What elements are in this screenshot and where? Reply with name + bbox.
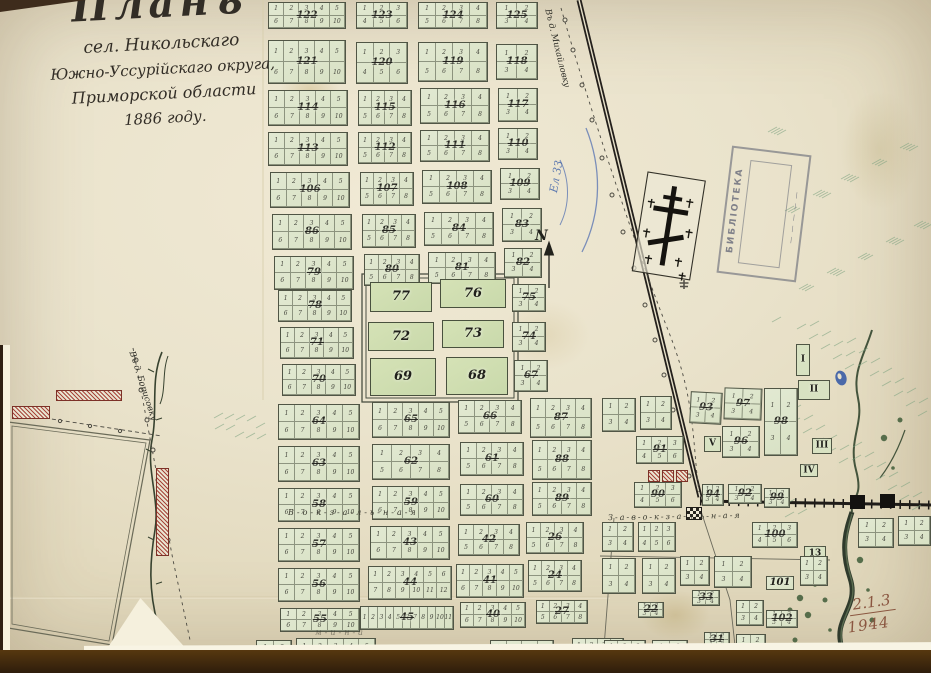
lot-number: 2 (289, 215, 305, 232)
lot-number: 6 (546, 418, 561, 437)
lot-number: 10 (330, 16, 345, 29)
lot-number: 3 (311, 489, 327, 505)
lot-number: 3 (403, 487, 418, 503)
lot-number: 3 (492, 485, 508, 500)
lot-number: 1 (725, 388, 744, 404)
lot-number: 2 (284, 3, 299, 16)
lot-number: 6 (461, 615, 474, 627)
city-block-98: 123498 (764, 388, 798, 456)
lot-number: 1 (531, 399, 546, 418)
lot-number: 1 (357, 43, 374, 63)
lot-number: 2 (438, 131, 455, 146)
lot-number: 1 (369, 567, 383, 583)
city-block-60: 1234567860 (460, 484, 524, 516)
lot-number: 3 (378, 607, 386, 629)
lot-number: 9 (316, 108, 332, 125)
lot-number: 1 (423, 171, 440, 187)
lot-number: 8 (310, 343, 324, 358)
lot-number: 9 (396, 583, 410, 599)
city-block-112: 12345678112 (358, 132, 412, 164)
lot-number: 6 (392, 462, 411, 479)
lot-number: 7 (459, 229, 476, 245)
city-block-91: 12345691 (636, 436, 684, 464)
lot-number: 7 (369, 583, 383, 599)
lot-number: 10 (337, 306, 351, 321)
lot-number: 1 (753, 523, 768, 535)
lot-number: 5 (459, 417, 475, 433)
lot-number: 2 (374, 43, 391, 63)
lot-number: 7 (555, 576, 568, 591)
lot-number: 6 (273, 232, 289, 249)
city-block-79: 1234567891079 (274, 256, 354, 290)
lot-number: 4 (517, 62, 537, 79)
lot-number: 6 (668, 450, 683, 463)
lot-number: 4 (315, 41, 330, 62)
lot-number: 7 (297, 380, 311, 395)
lot-number: 3 (403, 403, 418, 420)
lot-number: 4 (814, 571, 827, 585)
lot-number: 5 (424, 567, 438, 583)
lot-number: 4 (419, 403, 434, 420)
lot-number: 1 (529, 561, 542, 576)
lot-number: 5 (341, 365, 355, 380)
lot-number: 2 (522, 209, 541, 225)
lot-number: 2 (285, 91, 301, 108)
lot-number: 6 (663, 537, 675, 551)
lot-number: 8 (402, 231, 415, 247)
lot-number: 1 (461, 485, 477, 500)
archive-reference: 2.1.3 1944 (848, 591, 899, 636)
lot-number: 8 (575, 612, 588, 623)
lot-number: 4 (320, 215, 336, 232)
lot-number: 8 (398, 108, 411, 125)
lot-number: 2 (619, 559, 635, 576)
lot-number: 1 (527, 523, 541, 538)
lot-number: 3 (555, 561, 568, 576)
lot-number: 4 (327, 489, 343, 505)
lot-number: 1 (459, 401, 475, 417)
lot-number: 2 (695, 557, 709, 571)
blue-pencil-marks (560, 128, 598, 252)
city-block-43: 1234567891043 (370, 526, 450, 560)
lot-number: 2 (470, 565, 483, 581)
lot-number: 4 (327, 569, 343, 585)
lot-number: 4 (322, 291, 336, 306)
lot-number: 1 (723, 427, 741, 442)
lot-number: 4 (398, 91, 411, 108)
lot-number: 9 (320, 232, 336, 249)
lot-number: 3 (503, 225, 522, 241)
lot-number: 3 (561, 399, 576, 418)
lot-number: 2 (523, 249, 541, 263)
lot-number: 4 (400, 173, 413, 189)
city-block-119: 12345678119 (418, 42, 488, 82)
lot-number: 2 (477, 443, 493, 459)
lot-number: 3 (499, 105, 518, 121)
lot-number: 8 (476, 229, 493, 245)
lot-number: 3 (668, 437, 683, 450)
city-block-76: 76 (440, 279, 506, 308)
lot-number: 4 (316, 91, 332, 108)
lot-number: 7 (295, 422, 311, 439)
lot-number: 10 (331, 149, 347, 165)
lot-number: 3 (899, 531, 915, 545)
lot-number: 3 (311, 529, 327, 545)
lot-number: 8 (577, 499, 592, 515)
city-block-III: III (812, 438, 832, 454)
lot-number: 3 (737, 613, 750, 625)
city-block-61: 1234567861 (460, 442, 524, 476)
lot-number: 8 (312, 380, 326, 395)
lot-number: 8 (506, 417, 522, 433)
lot-number: 1 (643, 559, 659, 576)
lot-number: 1 (503, 209, 522, 225)
library-stamp: БИБЛІОТЕКА — — — — — (716, 146, 811, 283)
lot-number: 2 (387, 527, 403, 543)
lot-number: 6 (440, 187, 457, 203)
city-block-88: 1234567888 (532, 440, 592, 480)
lot-number: 3 (492, 443, 508, 459)
lot-number: 7 (455, 106, 472, 123)
lot-number: 2 (741, 427, 759, 442)
lot-number: 5 (339, 328, 353, 343)
lot-number: 4 (876, 533, 893, 547)
lot-number: 5 (337, 257, 353, 273)
lot-number: 7 (284, 16, 299, 29)
lot-number: 6 (281, 343, 295, 358)
lot-number: 7 (295, 545, 311, 561)
lot-number: 2 (287, 173, 303, 190)
lot-number: 3 (641, 413, 656, 429)
lot-number: 2 (745, 485, 761, 494)
lot-number: 5 (533, 460, 548, 479)
lot-number: 2 (520, 169, 539, 184)
city-block-72: 72 (368, 322, 434, 351)
city-block-109: 1234109 (500, 168, 540, 200)
lot-number: 1 (635, 483, 650, 495)
lot-number: 4 (318, 173, 334, 190)
lot-number: 1 (365, 255, 379, 270)
lot-number: 3 (555, 523, 569, 538)
lot-number: 4 (357, 63, 374, 83)
lot-number: 4 (419, 487, 434, 503)
lot-number: 5 (394, 607, 402, 629)
lot-number: 4 (576, 399, 591, 418)
lot-number: 8 (403, 420, 418, 437)
lot-number: 2 (548, 441, 563, 460)
map-title: Планъ сел. Никольскаго Южно-Уссурійскаго… (38, 0, 285, 133)
lot-number: 2 (291, 257, 307, 273)
lot-number: 7 (287, 190, 303, 207)
lot-number: 4 (753, 535, 768, 547)
lot-number: 2 (295, 529, 311, 545)
lot-number: 6 (281, 620, 297, 631)
city-block-97: 123497 (723, 387, 762, 420)
lot-number: 3 (723, 442, 741, 457)
lot-number: 4 (470, 3, 487, 16)
lot-number: 4 (499, 603, 512, 615)
city-block: 1234 (898, 516, 931, 546)
lot-number: 2 (383, 567, 397, 583)
lot-number: 3 (724, 403, 743, 419)
lot-number: 5 (537, 612, 550, 623)
lot-number: 1 (505, 249, 523, 263)
lot-number: 3 (513, 298, 529, 311)
lot-number: 4 (327, 529, 343, 545)
lot-number: 5 (533, 499, 548, 515)
lot-number: 7 (387, 543, 403, 559)
lot-number: 10 (343, 585, 359, 601)
lot-number: 8 (311, 585, 327, 601)
lot-number: 1 (765, 489, 777, 498)
lot-number: 1 (533, 483, 548, 499)
lot-number: 7 (562, 460, 577, 479)
lot-number: 6 (542, 576, 555, 591)
lot-number: 5 (343, 405, 359, 422)
lot-number: 1 (641, 397, 656, 413)
lot-number: 4 (322, 257, 338, 273)
bridge-abutment (880, 494, 895, 508)
city-block-77: 77 (370, 282, 432, 312)
city-block-33: 123433 (692, 590, 720, 606)
lot-number: 2 (475, 401, 491, 417)
lot-number: 1 (283, 365, 297, 380)
city-block-101: 101 (766, 576, 794, 590)
lot-number: 3 (715, 572, 733, 587)
city-block-102: 1234102 (766, 610, 798, 628)
lot-number: 5 (343, 569, 359, 585)
city-block-115: 12345678115 (358, 90, 412, 126)
city-block-68: 68 (446, 357, 508, 395)
lot-number: 4 (506, 401, 522, 417)
lot-number: 7 (492, 500, 508, 515)
north-arrow (545, 242, 554, 288)
lot-number: 5 (343, 529, 359, 545)
lot-number: 4 (575, 601, 588, 612)
city-block-74: 123474 (512, 322, 546, 352)
city-block-118: 1234118 (496, 44, 538, 80)
lot-number: 2 (517, 45, 537, 62)
city-block-45: 123456789101145 (360, 606, 454, 630)
lot-number: 2 (285, 133, 301, 149)
lot-number: 2 (782, 611, 797, 619)
lot-number: 7 (389, 231, 402, 247)
lot-number: 2 (650, 483, 665, 495)
lot-number: 6 (279, 464, 295, 481)
city-block-69: 69 (370, 358, 436, 396)
lot-number: 1 (715, 557, 733, 572)
city-block-84: 1234567884 (424, 212, 494, 246)
city-block-41: 1234567891041 (456, 564, 524, 598)
lot-number: 8 (299, 16, 314, 29)
lot-number: 8 (483, 581, 496, 597)
city-block: 1234 (714, 556, 752, 588)
lot-number: 2 (388, 403, 403, 420)
lot-number: 2 (652, 437, 667, 450)
lot-number: 6 (373, 420, 388, 437)
lot-number: 2 (436, 43, 453, 62)
lot-number: 4 (619, 576, 635, 593)
lot-number: 1 (639, 603, 651, 610)
lot-number: 10 (510, 581, 523, 597)
lot-number: 2 (529, 285, 545, 298)
lot-number: 3 (505, 263, 523, 277)
lot-number: 4 (531, 376, 547, 391)
lot-number: 7 (555, 538, 569, 553)
lot-number: 2 (529, 323, 545, 337)
lot-number: 3 (302, 173, 318, 190)
lot-number: 7 (455, 146, 472, 161)
lot-number: 5 (461, 500, 477, 515)
lot-number: 3 (308, 291, 322, 306)
lot-number: 1 (419, 43, 436, 62)
lot-number: 2 (546, 399, 561, 418)
city-block-71: 1234567891071 (280, 327, 354, 359)
lot-number: 3 (859, 533, 876, 547)
lot-number: 6 (372, 148, 385, 163)
lot-number: 1 (459, 525, 474, 540)
lot-number: 4 (386, 607, 394, 629)
lot-number: 5 (373, 462, 392, 479)
block-number: 77 (371, 289, 431, 304)
blue-ink-blob (834, 369, 849, 386)
lot-number: 9 (499, 615, 512, 627)
lot-number: 4 (326, 365, 340, 380)
lot-number: 7 (293, 306, 307, 321)
lot-number: 2 (781, 389, 797, 422)
lot-number: 5 (423, 187, 440, 203)
lot-number: 1 (279, 405, 295, 422)
lot-number: 8 (304, 232, 320, 249)
lot-number: 1 (357, 3, 374, 16)
city-block-99: 123499 (764, 488, 790, 508)
lot-number: 8 (402, 543, 418, 559)
lot-number: 4 (328, 609, 344, 620)
lot-number: 4 (430, 445, 449, 462)
lot-number: 4 (520, 184, 539, 199)
lot-number: 3 (310, 328, 324, 343)
lot-number: 4 (745, 494, 761, 503)
lot-number: 2 (297, 365, 311, 380)
lot-number: 8 (308, 306, 322, 321)
lot-number: 1 (681, 557, 695, 571)
lot-number: 4 (742, 404, 761, 420)
lot-number: 3 (411, 445, 430, 462)
lot-number: 2 (876, 519, 893, 533)
lot-number: 5 (421, 146, 438, 161)
lot-number: 1 (513, 285, 529, 298)
block-number: 72 (369, 328, 433, 343)
city-block-120: 123456120 (356, 42, 408, 84)
lot-number: 3 (703, 495, 713, 505)
lot-number: 4 (497, 565, 510, 581)
lot-number: 9 (326, 380, 340, 395)
lot-number: 1 (729, 485, 745, 494)
lot-number: 8 (508, 459, 524, 475)
lot-number: 2 (915, 517, 931, 531)
city-block: 1234 (800, 556, 828, 586)
lot-number: 6 (376, 231, 389, 247)
map-photo: { "map": { "title": { "line1": "Планъ", … (0, 0, 931, 673)
lot-number: 3 (562, 441, 577, 460)
lot-number: 4 (577, 483, 592, 499)
lot-number: 2 (374, 173, 387, 189)
lot-number: 4 (402, 215, 415, 231)
lot-number: 3 (515, 376, 531, 391)
lot-number: 5 (527, 538, 541, 553)
block-number: 69 (371, 369, 435, 384)
lot-number: 3 (312, 609, 328, 620)
lot-number: 4 (782, 619, 797, 627)
lot-number: 4 (518, 105, 537, 121)
lot-number: 1 (419, 3, 436, 16)
lot-number: 3 (306, 257, 322, 273)
lot-number: 3 (311, 569, 327, 585)
lot-number: 5 (333, 173, 349, 190)
lot-number: 2 (659, 559, 675, 576)
lot-number: 5 (343, 489, 359, 505)
lot-number: 3 (497, 16, 517, 29)
lot-number: 1 (279, 529, 295, 545)
lot-number: 4 (327, 447, 343, 464)
city-block (12, 406, 50, 419)
lot-number: 8 (577, 460, 592, 479)
lot-number: 2 (379, 255, 393, 270)
lot-number: 2 (651, 603, 663, 610)
lot-number: 4 (474, 171, 491, 187)
city-block: 1234 (736, 600, 764, 626)
lot-number: 3 (489, 525, 504, 540)
lot-number: 4 (508, 443, 524, 459)
lot-number: 8 (576, 418, 591, 437)
lot-number: 5 (512, 603, 525, 615)
lot-number: 1 (497, 45, 517, 62)
block-number: 73 (443, 326, 503, 341)
lot-number: 1 (271, 173, 287, 190)
title-line: Планъ (38, 0, 280, 30)
lot-number: 1 (705, 633, 717, 640)
lot-number: 2 (388, 487, 403, 503)
lot-number: 5 (650, 495, 665, 507)
lot-number: 3 (311, 447, 327, 464)
lot-number: 1 (421, 131, 438, 146)
lot-number: 4 (659, 576, 675, 593)
lot-number: 1 (603, 523, 618, 537)
block-number: III (813, 441, 831, 451)
lot-number: 4 (418, 527, 434, 543)
lot-number: 1 (373, 445, 392, 462)
lot-number: 10 (333, 190, 349, 207)
street-label-vokzalnaya: В-о-к-з-а-л-ь-н-а-я (288, 508, 419, 517)
city-block-67: 123467 (514, 360, 548, 392)
lot-number: 3 (457, 171, 474, 187)
lot-number: 7 (285, 108, 301, 125)
lot-number: 2 (706, 591, 719, 598)
lot-number: 4 (327, 405, 343, 422)
lot-number: 5 (510, 565, 523, 581)
lot-number: 2 (446, 253, 463, 268)
lot-number: 2 (542, 561, 555, 576)
city-block: 1234 (642, 558, 676, 594)
lot-number: 4 (398, 133, 411, 148)
city-block (662, 470, 674, 482)
lot-number: 1 (859, 519, 876, 533)
lot-number: 1 (359, 91, 372, 108)
lot-number: 5 (531, 418, 546, 437)
lot-number: 6 (442, 229, 459, 245)
city-block-I: I (796, 344, 810, 376)
lot-number: 4 (324, 328, 338, 343)
